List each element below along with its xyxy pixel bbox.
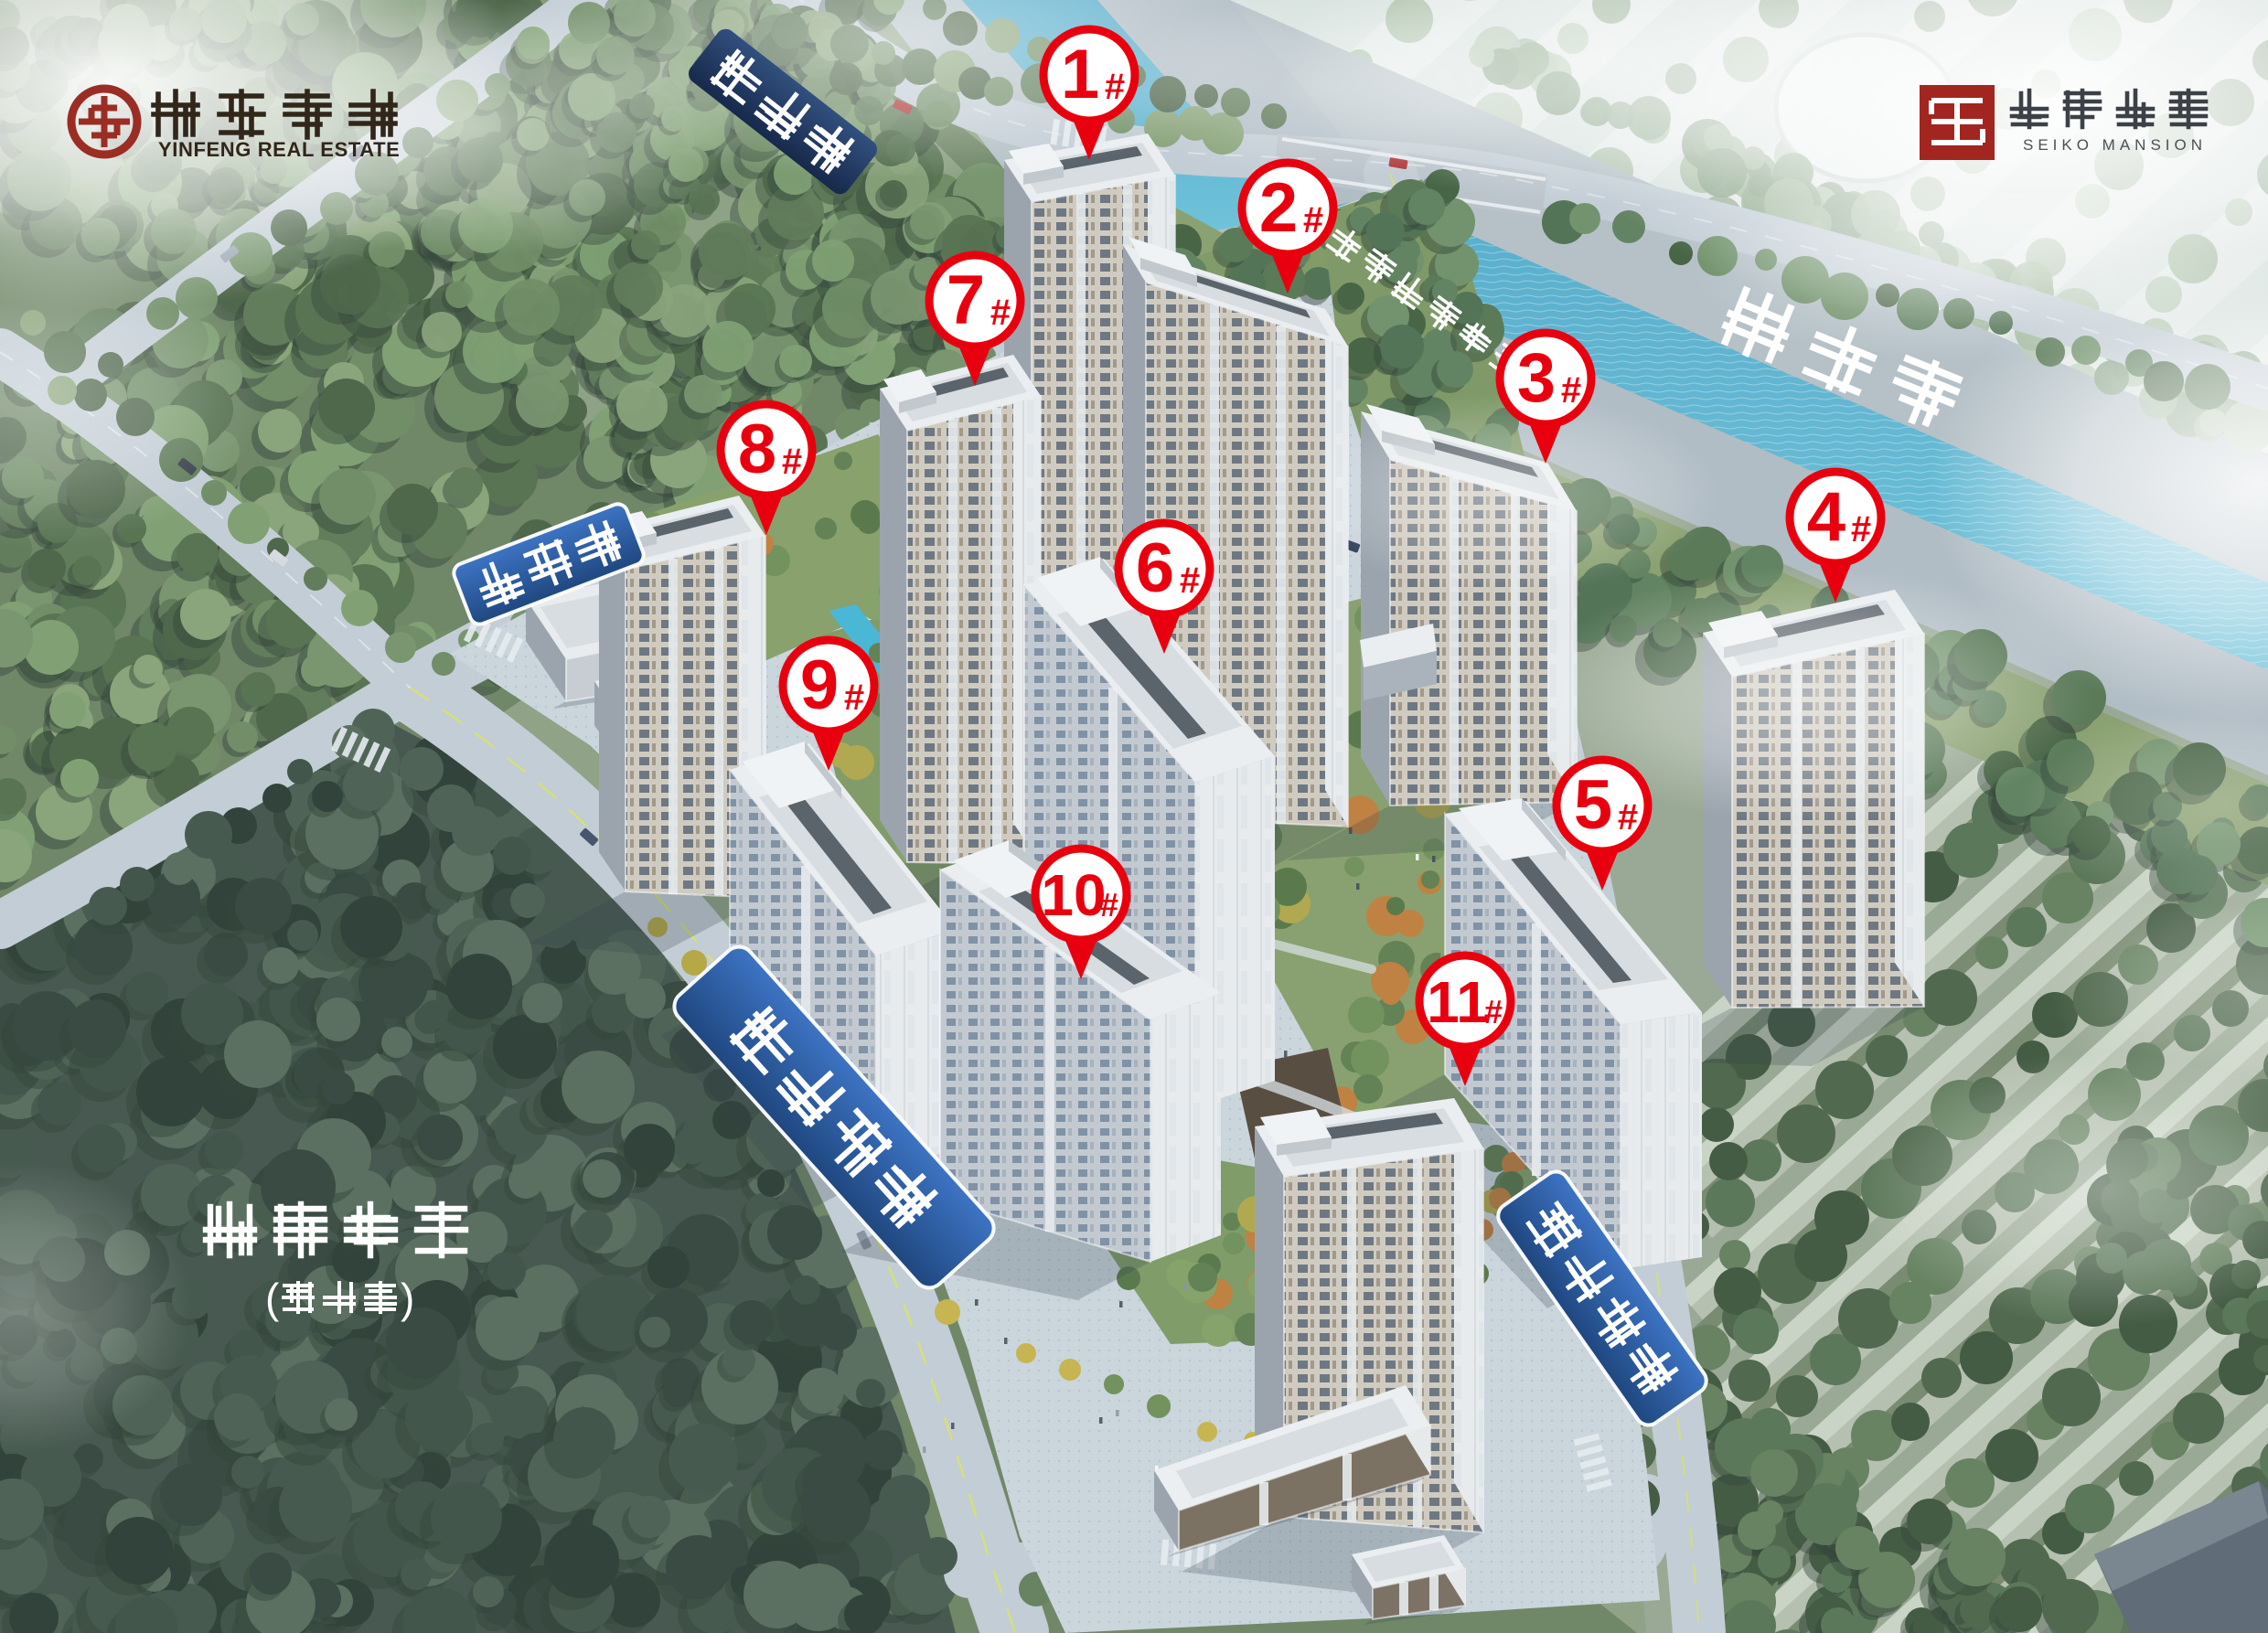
svg-text:#: # <box>1303 200 1323 240</box>
svg-text:11: 11 <box>1427 969 1489 1035</box>
svg-text:SEIKO MANSION: SEIKO MANSION <box>2023 136 2207 154</box>
svg-text:#: # <box>990 293 1011 333</box>
svg-text:3: 3 <box>1517 339 1556 417</box>
svg-text:YINFENG REAL ESTATE: YINFENG REAL ESTATE <box>158 138 400 161</box>
svg-text:(: ( <box>265 1275 280 1322</box>
svg-text:#: # <box>844 678 864 718</box>
svg-text:#: # <box>1618 797 1638 838</box>
svg-text:#: # <box>1105 67 1125 107</box>
svg-text:10: 10 <box>1041 862 1106 928</box>
svg-text:#: # <box>1561 370 1581 411</box>
svg-text:9: 9 <box>800 646 839 724</box>
svg-text:#: # <box>1484 993 1503 1030</box>
svg-text:#: # <box>1100 886 1118 923</box>
svg-text:1: 1 <box>1061 36 1099 113</box>
svg-text:7: 7 <box>947 261 985 339</box>
svg-text:8: 8 <box>738 411 776 488</box>
svg-text:#: # <box>1851 509 1871 550</box>
svg-text:#: # <box>1180 560 1200 601</box>
svg-text:): ) <box>401 1275 414 1322</box>
svg-text:4: 4 <box>1807 478 1845 556</box>
svg-text:2: 2 <box>1259 169 1298 247</box>
svg-text:6: 6 <box>1136 529 1174 607</box>
svg-text:#: # <box>782 442 802 482</box>
svg-text:5: 5 <box>1574 766 1612 844</box>
